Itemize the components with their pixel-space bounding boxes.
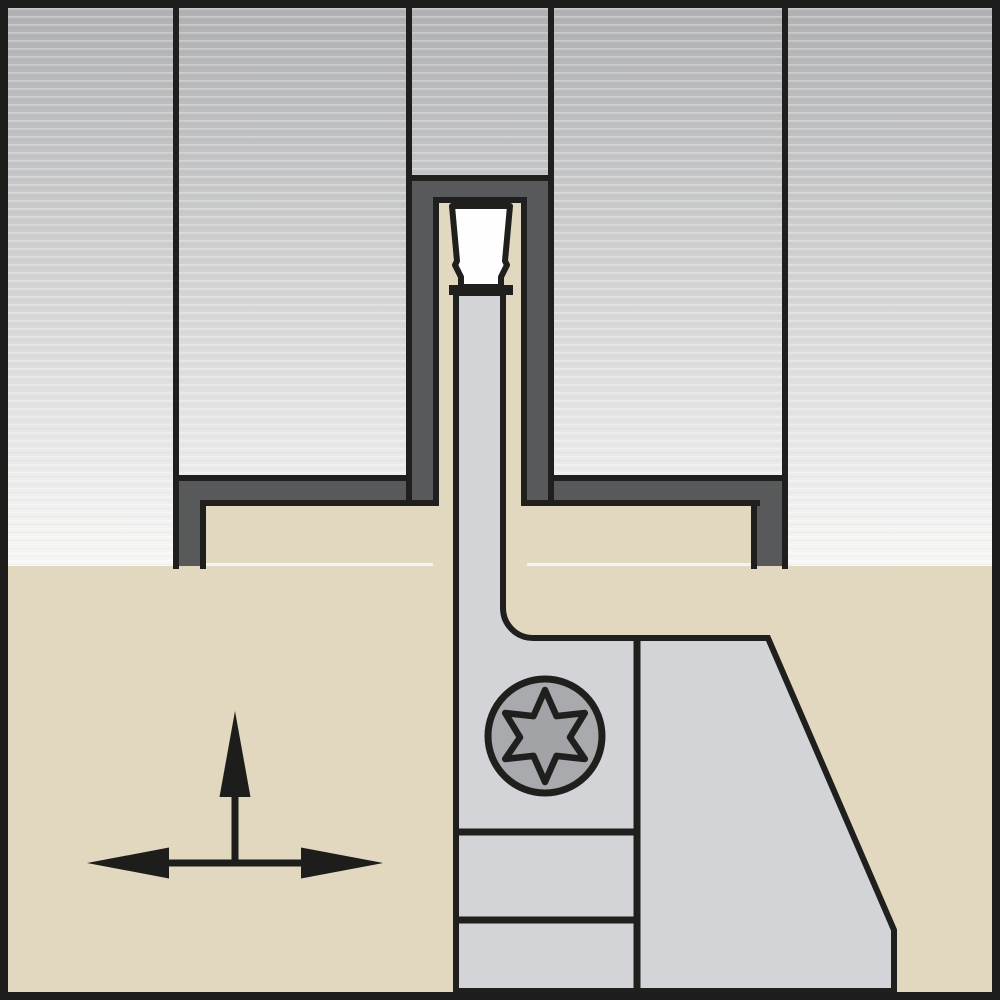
diagram-canvas xyxy=(0,0,1000,1000)
cutting-insert xyxy=(452,206,510,287)
grooving-tool-diagram xyxy=(0,0,1000,1000)
horizontal-arrow-shaft xyxy=(166,860,306,867)
clamp-screw xyxy=(488,679,602,793)
up-arrow-shaft xyxy=(232,793,239,866)
left-underhang-tan xyxy=(206,506,441,563)
right-underhang-tan xyxy=(521,506,751,563)
